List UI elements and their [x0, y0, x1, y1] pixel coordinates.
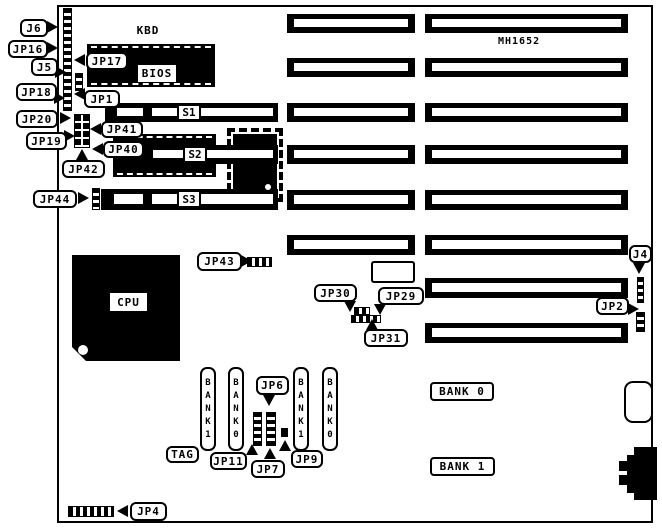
rounded-component-outline [624, 381, 653, 423]
jp42-callout: JP42 [62, 160, 105, 178]
jp29-pointer [374, 304, 386, 315]
jumper-block-jp19-jp42 [74, 114, 90, 148]
jp30-jumper [354, 307, 370, 315]
jp17-callout: JP17 [86, 52, 128, 70]
jp20-callout: JP20 [16, 110, 58, 128]
jp31-callout: JP31 [364, 329, 408, 347]
keyboard-din-pin-upper [619, 461, 628, 471]
jp20-pointer [60, 112, 71, 124]
keyboard-din-connector-body [627, 455, 637, 493]
jp18-callout: JP18 [16, 83, 57, 101]
jp41-callout: JP41 [101, 121, 143, 138]
keyboard-din-pin-lower [619, 475, 628, 485]
cache-left-bank1-label: B A N K 1 [200, 367, 216, 451]
kbd-chip-label: KBD [131, 22, 165, 38]
slot-s2-label: S2 [183, 146, 207, 163]
tag-callout: TAG [166, 446, 199, 463]
j5-callout: J5 [31, 58, 58, 76]
simm-bank0-label: BANK 0 [430, 382, 494, 401]
isa-slot-right-3 [425, 103, 628, 122]
jp30-callout: JP30 [314, 284, 357, 302]
jp40-callout: JP40 [103, 141, 144, 158]
jp1-callout: JP1 [84, 90, 120, 108]
j6-callout: J6 [20, 19, 48, 37]
oscillator [371, 261, 415, 283]
isa-slot-left-6 [287, 235, 415, 255]
model-number: MH1652 [498, 36, 558, 49]
jp2-jumper [636, 312, 645, 332]
jp44-pointer [78, 192, 89, 204]
isa-slot-right-4 [425, 145, 628, 164]
jp6-callout: JP6 [256, 376, 289, 395]
j4-pointer [633, 263, 645, 274]
jp16-pointer [47, 42, 58, 54]
jp16-callout: JP16 [8, 40, 48, 58]
jp9-callout: JP9 [291, 450, 323, 468]
jp11-pointer [246, 444, 258, 455]
jp4-callout: JP4 [130, 502, 167, 521]
jp2-pointer [628, 303, 639, 315]
isa-slot-right-1 [425, 14, 628, 33]
slot-s3-label: S3 [177, 190, 201, 208]
jp7-callout: JP7 [251, 460, 285, 478]
jp44-callout: JP44 [33, 190, 77, 208]
jp43-callout: JP43 [197, 252, 242, 271]
isa-slot-right-2 [425, 58, 628, 77]
cache-right-bank1-label: B A N K 1 [293, 367, 309, 451]
isa-slot-left-5 [287, 190, 415, 210]
isa-slot-right-5 [425, 190, 628, 210]
slot-s1-label: S1 [177, 104, 201, 121]
isa-slot-right-8 [425, 323, 628, 343]
qfp-chip-top-pin1-dot [265, 184, 271, 190]
cpu-label: CPU [110, 293, 147, 311]
jp4-pointer [117, 505, 128, 517]
cpu-pin1-dot [78, 345, 88, 355]
jp6-jp7-jumper [266, 412, 276, 446]
jp19-callout: JP19 [26, 132, 67, 150]
jp44-jumper [92, 188, 100, 210]
j4-jumper [637, 277, 644, 303]
isa-slot-right-6 [425, 235, 628, 255]
jp42-pointer [76, 149, 88, 160]
isa-slot-right-7 [425, 278, 628, 298]
j6-pointer [47, 21, 58, 33]
jp4-header [68, 506, 114, 517]
isa-slot-left-4 [287, 145, 415, 164]
jp11-jumper [253, 412, 262, 446]
jp30-pointer [344, 301, 356, 312]
jp43-pointer [241, 255, 252, 267]
jp2-callout: JP2 [596, 297, 629, 315]
jp7-pointer [264, 448, 276, 459]
jp11-callout: JP11 [210, 452, 247, 470]
isa-slot-left-3 [287, 103, 415, 122]
jp17-pointer [74, 54, 85, 66]
jp9-jumper [281, 428, 288, 437]
keyboard-din-connector [634, 447, 657, 500]
simm-bank1-label: BANK 1 [430, 457, 495, 476]
jp41-pointer [90, 123, 101, 135]
isa-slot-left-2 [287, 58, 415, 77]
jp6-pointer [263, 395, 275, 406]
slot-s2 [147, 145, 278, 164]
j4-callout: J4 [629, 245, 652, 263]
motherboard-diagram: MH1652 KBD BIOS CPU S1 S2 [0, 0, 662, 528]
cache-left-bank0-label: B A N K 0 [228, 367, 244, 451]
cache-right-bank0-label: B A N K 0 [322, 367, 338, 451]
jp29-callout: JP29 [378, 287, 424, 305]
jp40-pointer [92, 143, 103, 155]
qfp-chip-top [233, 134, 277, 196]
bios-chip-label: BIOS [138, 65, 176, 82]
isa-slot-left-1 [287, 14, 415, 33]
jp9-pointer [279, 440, 291, 451]
